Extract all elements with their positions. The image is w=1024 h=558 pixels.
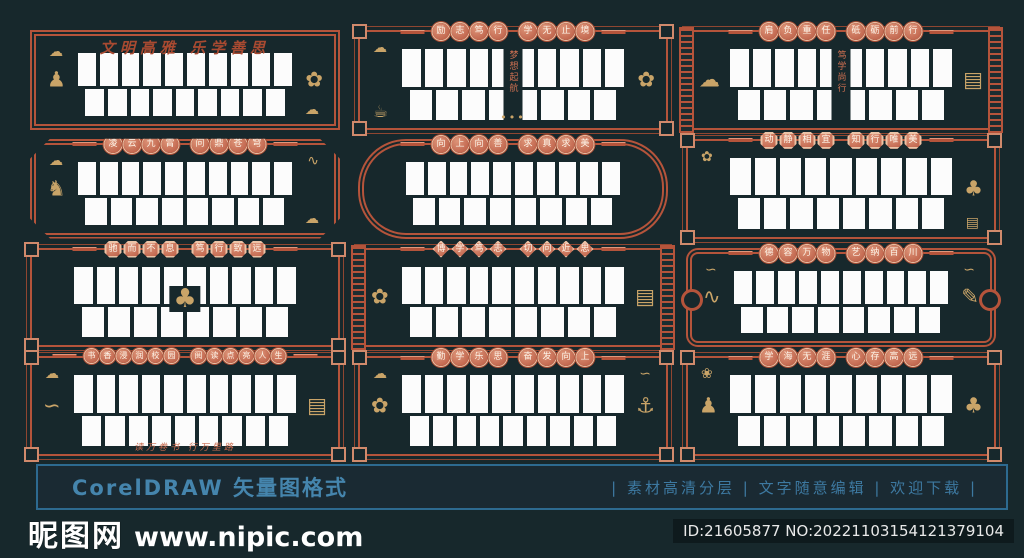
- photo-placeholder: [447, 49, 466, 87]
- photo-placeholder: [550, 416, 569, 446]
- photo-placeholder: [470, 267, 489, 305]
- title-line: [602, 247, 626, 251]
- title-medallion: 前: [886, 23, 903, 40]
- culture-wall-panel-10: 书香浸润校园阅读点亮人生☁∽▤读万卷书 行万里路: [30, 356, 340, 456]
- photo-placeholder: [896, 198, 918, 228]
- title-line: [73, 142, 97, 146]
- culture-wall-panel-9: 德容万物艺纳百川∽∿∽✎: [686, 248, 996, 348]
- title-medallion: 学: [520, 23, 537, 40]
- title-medallion: 海: [780, 349, 797, 366]
- title-medallion-group: 凌云九霄: [105, 136, 179, 153]
- corner-ornament-icon: [659, 447, 674, 462]
- title-medallion: 物: [818, 245, 835, 262]
- photo-placeholder: [764, 90, 786, 120]
- flower-vase-icon: ✿: [637, 69, 655, 90]
- corner-ornament-icon: [659, 24, 674, 39]
- photo-placeholder: [738, 198, 760, 228]
- photo-placeholder: [162, 198, 183, 225]
- title-medallion: 纳: [867, 245, 884, 262]
- panel-title: 凌云九霄问鼎苍穹: [73, 136, 298, 153]
- photo-placeholder: [764, 416, 786, 446]
- title-medallion-group: 励志笃行: [433, 23, 507, 40]
- photo-row-bottom: [413, 198, 612, 225]
- photo-grid: [78, 162, 292, 225]
- photo-placeholder: [74, 267, 93, 305]
- corner-ornament-icon: [659, 121, 674, 136]
- fish-icon: ∿: [307, 154, 319, 168]
- panel-title: 驰而不息笃行致远: [73, 241, 298, 258]
- photo-placeholder: [274, 162, 292, 195]
- photo-placeholder: [402, 267, 421, 305]
- photo-placeholder: [790, 90, 812, 120]
- photo-placeholder: [817, 416, 839, 446]
- photo-row-top: [74, 375, 296, 413]
- title-medallion: 书: [85, 349, 99, 363]
- photo-placeholder: [798, 49, 817, 87]
- photo-placeholder: [594, 307, 616, 337]
- title-medallion: 涯: [818, 349, 835, 366]
- title-medallion: 境: [577, 23, 594, 40]
- photo-placeholder: [447, 375, 466, 413]
- title-medallion-group: 学无止境: [520, 23, 594, 40]
- nipic-url: www.nipic.com: [134, 522, 363, 553]
- photo-placeholder: [580, 162, 598, 195]
- flower-vase-icon: ✿: [371, 287, 389, 308]
- title-medallion: 任: [818, 23, 835, 40]
- title-medallion: 而: [124, 241, 141, 258]
- culture-wall-panel-3: 肩负重任砥砺前行笃学尚行☁▤: [686, 30, 996, 130]
- photo-placeholder: [922, 416, 944, 446]
- photo-placeholder: [541, 307, 563, 337]
- title-medallion: 无: [799, 349, 816, 366]
- title-line: [53, 354, 77, 358]
- photo-placeholder: [428, 162, 446, 195]
- bird-icon: ∽: [43, 396, 61, 417]
- title-medallion: 奋: [520, 349, 537, 366]
- file-format-label: CorelDRAW 矢量图格式: [72, 472, 348, 502]
- corner-ornament-icon: [24, 350, 39, 365]
- photo-placeholder: [767, 307, 788, 334]
- photo-placeholder: [503, 416, 522, 446]
- title-line: [294, 354, 318, 358]
- corner-ornament-icon: [331, 350, 346, 365]
- title-medallion: 驰: [105, 241, 122, 258]
- title-medallion: 笃: [192, 241, 209, 258]
- photo-placeholder: [119, 375, 138, 413]
- photo-placeholder: [933, 49, 952, 87]
- greek-key-border: [679, 27, 694, 133]
- photo-placeholder: [515, 162, 533, 195]
- title-line: [274, 142, 298, 146]
- cloud-icon: ☁: [699, 69, 720, 90]
- photo-placeholder: [447, 267, 466, 305]
- title-medallion-group: 动静相宜: [761, 132, 835, 149]
- title-medallion-group: 肩负重任: [761, 23, 835, 40]
- corner-ornament-icon: [987, 447, 1002, 462]
- photo-placeholder: [221, 89, 240, 116]
- cloud-icon: ☁: [305, 103, 319, 117]
- title-line: [401, 247, 425, 251]
- cloud-icon: ☁: [49, 154, 63, 168]
- photo-placeholder: [105, 416, 124, 446]
- title-medallion: 心: [848, 349, 865, 366]
- cloud-icon: ☁: [305, 212, 319, 226]
- culture-wall-panel-5: 向上向善求真求美: [358, 139, 668, 239]
- photo-placeholder: [111, 198, 132, 225]
- sun-icon: ❀: [701, 367, 713, 381]
- reader-icon: ♟: [699, 396, 718, 417]
- flower-vase-icon: ✿: [305, 69, 323, 90]
- photo-placeholder: [538, 49, 557, 87]
- culture-wall-panel-2: 励志笃行学无止境梦想起航☁☕✿•••: [358, 30, 668, 130]
- photo-placeholder: [817, 198, 839, 228]
- photo-placeholder: [597, 416, 616, 446]
- photo-placeholder: [843, 271, 861, 304]
- photo-placeholder: [413, 198, 434, 225]
- title-medallion: 园: [165, 349, 179, 363]
- title-medallion: 穹: [249, 136, 266, 153]
- photo-placeholder: [908, 271, 926, 304]
- title-medallion: 志: [452, 23, 469, 40]
- culture-wall-panel-4: 凌云九霄问鼎苍穹☁♞∿☁: [30, 139, 340, 239]
- photo-placeholder: [97, 375, 116, 413]
- photo-placeholder: [568, 307, 590, 337]
- photo-placeholder: [790, 198, 812, 228]
- title-medallion: 博: [433, 241, 450, 258]
- photo-placeholder: [252, 162, 270, 195]
- title-line: [401, 142, 425, 146]
- photo-placeholder: [753, 49, 772, 87]
- title-medallion: 美: [577, 136, 594, 153]
- title-medallion: 阅: [192, 349, 206, 363]
- photo-placeholder: [594, 90, 616, 120]
- photo-placeholder: [922, 90, 944, 120]
- title-line: [602, 142, 626, 146]
- photo-grid: [74, 375, 296, 446]
- title-medallion: 无: [539, 23, 556, 40]
- panel-footer-script: 读万卷书 行万里路: [134, 440, 236, 453]
- title-line: [73, 247, 97, 251]
- title-medallion: 唯: [886, 132, 903, 149]
- photo-placeholder: [433, 416, 452, 446]
- photo-placeholder: [930, 271, 948, 304]
- photo-placeholder: [436, 90, 458, 120]
- photo-placeholder: [143, 162, 161, 195]
- photo-placeholder: [805, 158, 826, 196]
- title-medallion: 高: [886, 349, 903, 366]
- photo-grid: [730, 375, 952, 446]
- photo-placeholder: [896, 416, 918, 446]
- title-medallion-group: 心存高远: [848, 349, 922, 366]
- title-medallion-group: 驰而不息: [105, 241, 179, 258]
- corner-ornament-icon: [680, 230, 695, 245]
- photo-placeholder: [869, 198, 891, 228]
- photo-placeholder: [490, 198, 511, 225]
- corner-ornament-icon: [987, 350, 1002, 365]
- title-medallion: 重: [799, 23, 816, 40]
- photo-placeholder: [780, 158, 801, 196]
- photo-placeholder: [869, 90, 891, 120]
- title-line: [930, 30, 954, 34]
- photo-row-bottom: [738, 198, 944, 228]
- title-line: [602, 356, 626, 360]
- title-medallion: 润: [133, 349, 147, 363]
- photo-placeholder: [457, 416, 476, 446]
- title-medallion: 致: [230, 241, 247, 258]
- photo-placeholder: [755, 158, 776, 196]
- photo-placeholder: [790, 416, 812, 446]
- photo-row-top: [402, 375, 624, 413]
- photo-row-bottom: [410, 307, 616, 337]
- brush-icon: ✎: [961, 287, 979, 308]
- title-medallion: 远: [905, 349, 922, 366]
- photo-placeholder: [209, 162, 227, 195]
- photo-row-bottom: [85, 89, 284, 116]
- photo-placeholder: [410, 307, 432, 337]
- title-medallion: 鼎: [211, 136, 228, 153]
- photo-placeholder: [583, 375, 602, 413]
- title-medallion: 负: [780, 23, 797, 40]
- corner-ornament-icon: [352, 447, 367, 462]
- title-medallion-group: 切问近思: [520, 241, 594, 258]
- greek-key-border: [660, 245, 675, 351]
- photo-grid: [402, 267, 624, 338]
- photo-placeholder: [792, 307, 813, 334]
- panel-title: 博学笃志切问近思: [401, 241, 626, 258]
- photo-placeholder: [210, 375, 229, 413]
- title-medallion: 苍: [230, 136, 247, 153]
- title-line: [729, 251, 753, 255]
- photo-placeholder: [560, 49, 579, 87]
- corner-ornament-icon: [24, 242, 39, 257]
- photo-placeholder: [74, 375, 93, 413]
- title-medallion: 励: [433, 23, 450, 40]
- photo-placeholder: [462, 307, 484, 337]
- photo-placeholder: [78, 53, 96, 86]
- title-medallion: 志: [490, 241, 507, 258]
- center-vertical-text: 笃学尚行: [832, 48, 851, 120]
- title-medallion: 近: [558, 241, 575, 258]
- title-medallion-group: 书香浸润校园: [85, 349, 179, 363]
- title-medallion: 动: [761, 132, 778, 149]
- photo-placeholder: [756, 271, 774, 304]
- photo-grid: [730, 158, 952, 229]
- corner-ornament-icon: [24, 447, 39, 462]
- title-medallion: 发: [539, 349, 556, 366]
- photo-placeholder: [470, 375, 489, 413]
- photo-placeholder: [165, 162, 183, 195]
- photo-placeholder: [231, 162, 249, 195]
- photo-placeholder: [464, 198, 485, 225]
- photo-placeholder: [243, 89, 262, 116]
- photo-placeholder: [176, 89, 195, 116]
- photo-placeholder: [108, 307, 130, 337]
- title-medallion-group: 笃行致远: [192, 241, 266, 258]
- photo-row-top: [78, 162, 292, 195]
- horse-icon: ♞: [47, 178, 66, 199]
- photo-placeholder: [210, 267, 229, 305]
- photo-placeholder: [799, 271, 817, 304]
- photo-placeholder: [778, 271, 796, 304]
- photo-placeholder: [843, 198, 865, 228]
- photo-placeholder: [515, 375, 534, 413]
- water-drops-icon: •••: [500, 112, 525, 123]
- photo-placeholder: [263, 198, 284, 225]
- title-medallion: 行: [490, 23, 507, 40]
- title-medallion-group: 勤学乐思: [433, 349, 507, 366]
- title-medallion-group: 德容万物: [761, 245, 835, 262]
- title-line: [401, 356, 425, 360]
- title-medallion: 万: [799, 245, 816, 262]
- photo-placeholder: [119, 267, 138, 305]
- photo-placeholder: [805, 375, 826, 413]
- panel-title: 肩负重任砥砺前行: [729, 23, 954, 40]
- photo-placeholder: [142, 375, 161, 413]
- photo-placeholder: [402, 49, 421, 87]
- tree-icon: ♣: [964, 178, 983, 199]
- boat-icon: ⚓: [636, 396, 655, 417]
- photo-placeholder: [266, 89, 285, 116]
- corner-ornament-icon: [659, 350, 674, 365]
- photo-placeholder: [738, 90, 760, 120]
- photo-placeholder: [425, 375, 444, 413]
- title-medallion: 浸: [117, 349, 131, 363]
- photo-placeholder: [868, 307, 889, 334]
- corner-ornament-icon: [680, 133, 695, 148]
- photo-placeholder: [82, 307, 104, 337]
- photo-placeholder: [931, 375, 952, 413]
- photo-placeholder: [213, 307, 235, 337]
- photo-placeholder: [142, 267, 161, 305]
- photo-placeholder: [866, 49, 885, 87]
- photo-placeholder: [583, 267, 602, 305]
- photo-placeholder: [425, 49, 444, 87]
- title-line: [729, 356, 753, 360]
- title-medallion: 思: [490, 349, 507, 366]
- photo-placeholder: [78, 162, 96, 195]
- culture-wall-panel-6: 动静相宜知行唯美✿♣▤: [686, 139, 996, 239]
- bird-icon: ∽: [705, 263, 717, 277]
- title-medallion: 学: [452, 349, 469, 366]
- culture-wall-panel-11: 勤学乐思奋发向上☁✿∽⚓: [358, 356, 668, 456]
- photo-placeholder: [425, 267, 444, 305]
- photo-placeholder: [85, 198, 106, 225]
- photo-row-bottom: [741, 307, 940, 334]
- title-medallion: 霄: [162, 136, 179, 153]
- fish-icon: ∿: [703, 287, 721, 308]
- photo-placeholder: [406, 162, 424, 195]
- photo-placeholder: [187, 162, 205, 195]
- photo-placeholder: [922, 198, 944, 228]
- photo-placeholder: [492, 267, 511, 305]
- title-medallion: 乐: [471, 349, 488, 366]
- title-medallion: 止: [558, 23, 575, 40]
- photo-placeholder: [255, 375, 274, 413]
- photo-row-bottom: [738, 416, 944, 446]
- photo-placeholder: [560, 375, 579, 413]
- title-medallion: 艺: [848, 245, 865, 262]
- title-medallion: 勤: [433, 349, 450, 366]
- panel-title: 德容万物艺纳百川: [729, 245, 954, 262]
- photo-placeholder: [559, 162, 577, 195]
- title-medallion: 思: [577, 241, 594, 258]
- panel-title: 勤学乐思奋发向上: [401, 349, 626, 366]
- title-medallion: 善: [490, 136, 507, 153]
- book-icon: ▤: [966, 216, 979, 230]
- title-medallion: 问: [192, 136, 209, 153]
- photo-placeholder: [560, 267, 579, 305]
- photo-placeholder: [269, 416, 288, 446]
- photo-placeholder: [489, 307, 511, 337]
- greek-key-border: [351, 245, 366, 351]
- flower-branch-icon: ✿: [701, 150, 713, 164]
- photo-placeholder: [906, 158, 927, 196]
- title-medallion: 美: [905, 132, 922, 149]
- photo-placeholder: [136, 198, 157, 225]
- photo-placeholder: [856, 158, 877, 196]
- photo-row-top: [730, 375, 952, 413]
- photo-row-bottom: [85, 198, 284, 225]
- title-medallion: 肩: [761, 23, 778, 40]
- scroll-stack-icon: ▤: [307, 396, 327, 417]
- photo-placeholder: [277, 375, 296, 413]
- tree-reader-icon: ♣: [169, 286, 200, 312]
- title-medallion: 读: [208, 349, 222, 363]
- panel-title: 书香浸润校园阅读点亮人生: [53, 349, 318, 363]
- culture-wall-panel-12: 学海无涯心存高远❀♟♣: [686, 356, 996, 456]
- photo-placeholder: [198, 89, 217, 116]
- title-medallion-group: 奋发向上: [520, 349, 594, 366]
- photo-placeholder: [187, 375, 206, 413]
- title-medallion: 行: [867, 132, 884, 149]
- photo-placeholder: [153, 89, 172, 116]
- photo-placeholder: [537, 162, 555, 195]
- photo-placeholder: [232, 375, 251, 413]
- title-medallion: 砺: [867, 23, 884, 40]
- photo-placeholder: [436, 307, 458, 337]
- panel-title: 学海无涯心存高远: [729, 349, 954, 366]
- title-medallion: 上: [452, 136, 469, 153]
- title-medallion: 宜: [818, 132, 835, 149]
- photo-placeholder: [919, 307, 940, 334]
- photo-placeholder: [568, 90, 590, 120]
- greek-key-border: [988, 27, 1003, 133]
- corner-ornament-icon: [331, 447, 346, 462]
- title-medallion: 砥: [848, 23, 865, 40]
- title-medallion: 点: [224, 349, 238, 363]
- panel-title: 励志笃行学无止境: [401, 23, 626, 40]
- title-medallion: 九: [143, 136, 160, 153]
- photo-placeholder: [605, 375, 624, 413]
- title-medallion: 香: [101, 349, 115, 363]
- panel-title: 动静相宜知行唯美: [729, 132, 954, 149]
- culture-wall-panel-7: 驰而不息笃行致远♣: [30, 248, 340, 348]
- cloud-icon: ☁: [373, 41, 387, 55]
- photo-placeholder: [515, 307, 537, 337]
- title-medallion: 容: [780, 245, 797, 262]
- photo-placeholder: [741, 307, 762, 334]
- title-medallion: 学: [761, 349, 778, 366]
- title-medallion: 人: [256, 349, 270, 363]
- corner-ornament-icon: [987, 230, 1002, 245]
- photo-placeholder: [238, 198, 259, 225]
- teapot-icon: ☕: [373, 104, 388, 121]
- photo-placeholder: [730, 158, 751, 196]
- title-medallion: 向: [433, 136, 450, 153]
- photo-placeholder: [888, 49, 907, 87]
- photo-placeholder: [266, 307, 288, 337]
- corner-ornament-icon: [680, 447, 695, 462]
